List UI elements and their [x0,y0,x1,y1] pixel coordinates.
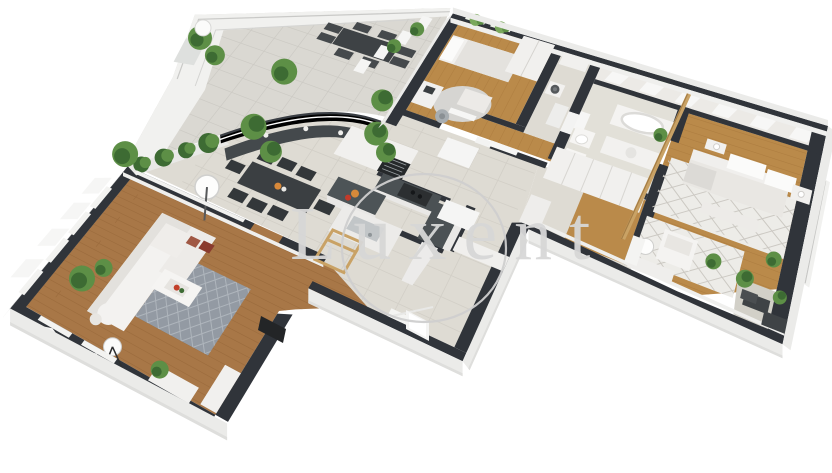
svg-text:Luxent: Luxent [290,192,607,276]
